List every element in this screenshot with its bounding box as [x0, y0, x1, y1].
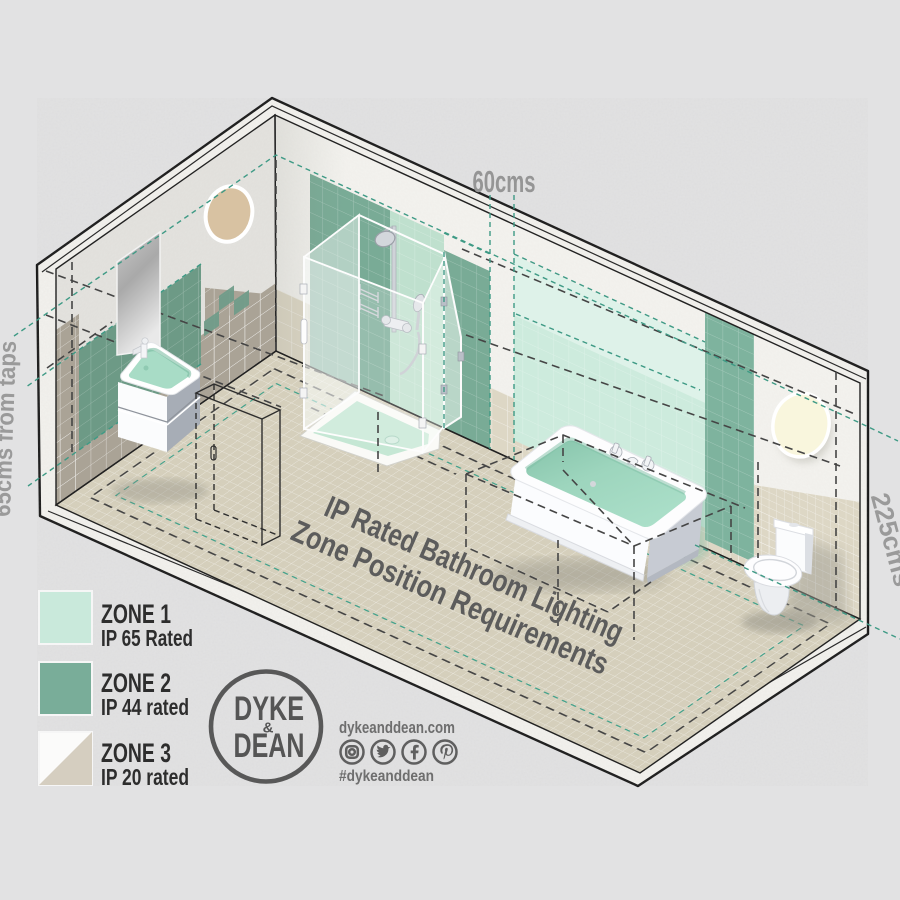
svg-text:IP 65 Rated: IP 65 Rated	[101, 625, 193, 651]
svg-text:#dykeanddean: #dykeanddean	[339, 768, 434, 785]
svg-text:60cms: 60cms	[473, 164, 536, 199]
svg-text:IP 44 rated: IP 44 rated	[101, 694, 189, 720]
svg-text:DEAN: DEAN	[234, 727, 305, 765]
svg-text:IP 20 rated: IP 20 rated	[101, 764, 189, 790]
svg-text:dykeanddean.com: dykeanddean.com	[339, 718, 455, 737]
